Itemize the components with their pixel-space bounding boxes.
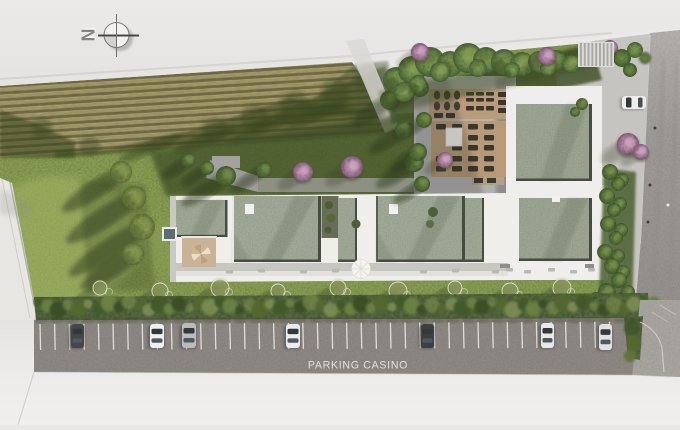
svg-text:N: N	[78, 29, 98, 42]
svg-text:PARKING CASINO: PARKING CASINO	[308, 360, 408, 372]
